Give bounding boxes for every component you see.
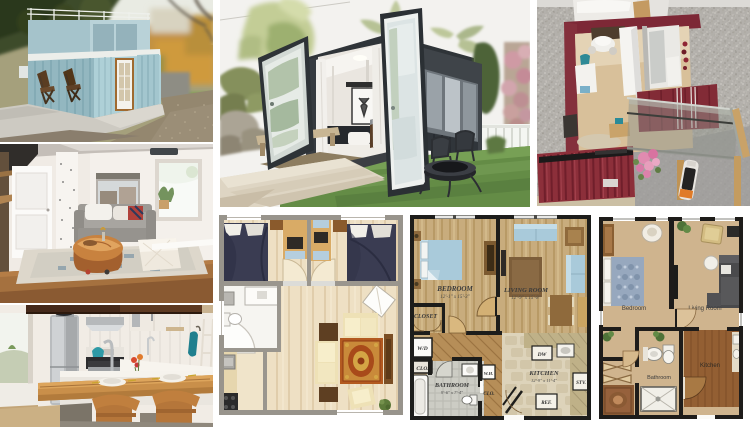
svg-text:STV.: STV. [576,381,586,386]
svg-text:LIVING ROOM: LIVING ROOM [503,287,548,294]
svg-text:Bathroom: Bathroom [647,375,671,381]
svg-text:12'-9" x 15'-8": 12'-9" x 15'-8" [511,296,541,301]
svg-text:BATHROOM: BATHROOM [434,383,470,389]
svg-text:REF.: REF. [541,401,552,406]
svg-text:12'-9" x 11'-4": 12'-9" x 11'-4" [531,378,557,383]
svg-text:Bedroom: Bedroom [622,306,646,312]
svg-text:BEDROOM: BEDROOM [436,285,473,293]
svg-text:W.H.: W.H. [484,371,493,376]
svg-text:CLO.: CLO. [416,366,428,372]
svg-text:KITCHEN: KITCHEN [528,370,559,377]
svg-text:Kitchen: Kitchen [700,363,720,369]
svg-text:12'-1" x 15'-3": 12'-1" x 15'-3" [440,295,470,300]
svg-text:CLOSET: CLOSET [414,314,437,320]
svg-text:CLO.: CLO. [483,392,494,397]
svg-text:W/D: W/D [417,346,427,352]
svg-text:DW: DW [537,352,548,358]
svg-text:9'-6" x 7'-4": 9'-6" x 7'-4" [441,390,463,395]
